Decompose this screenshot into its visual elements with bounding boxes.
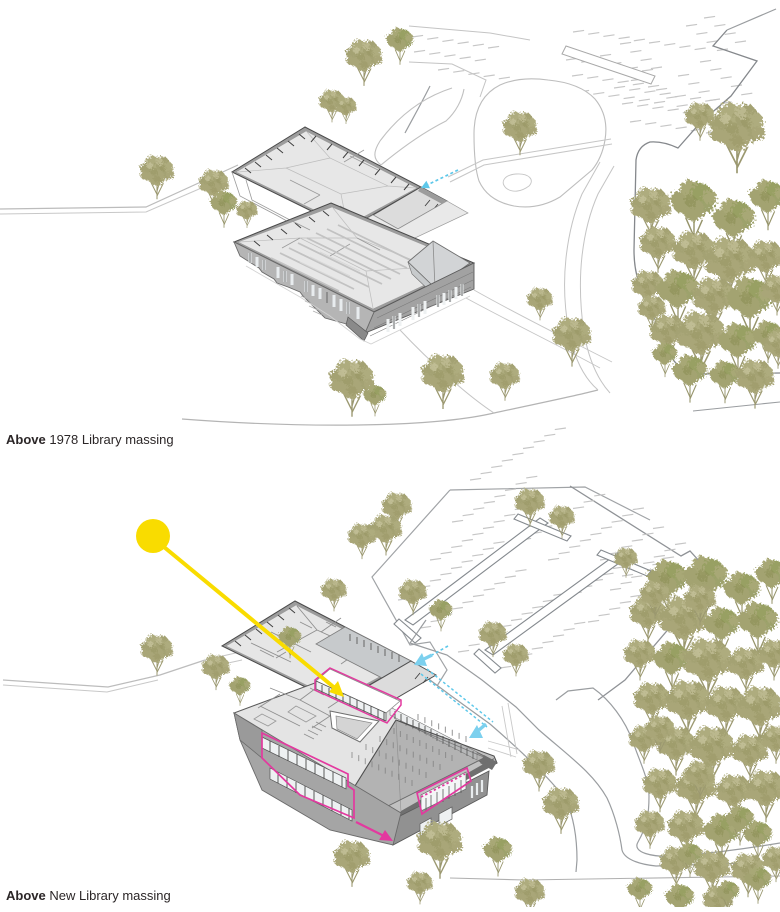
svg-text:Above 1978 Library massing: Above 1978 Library massing (6, 432, 174, 447)
svg-text:Above New Library massing: Above New Library massing (6, 888, 171, 903)
